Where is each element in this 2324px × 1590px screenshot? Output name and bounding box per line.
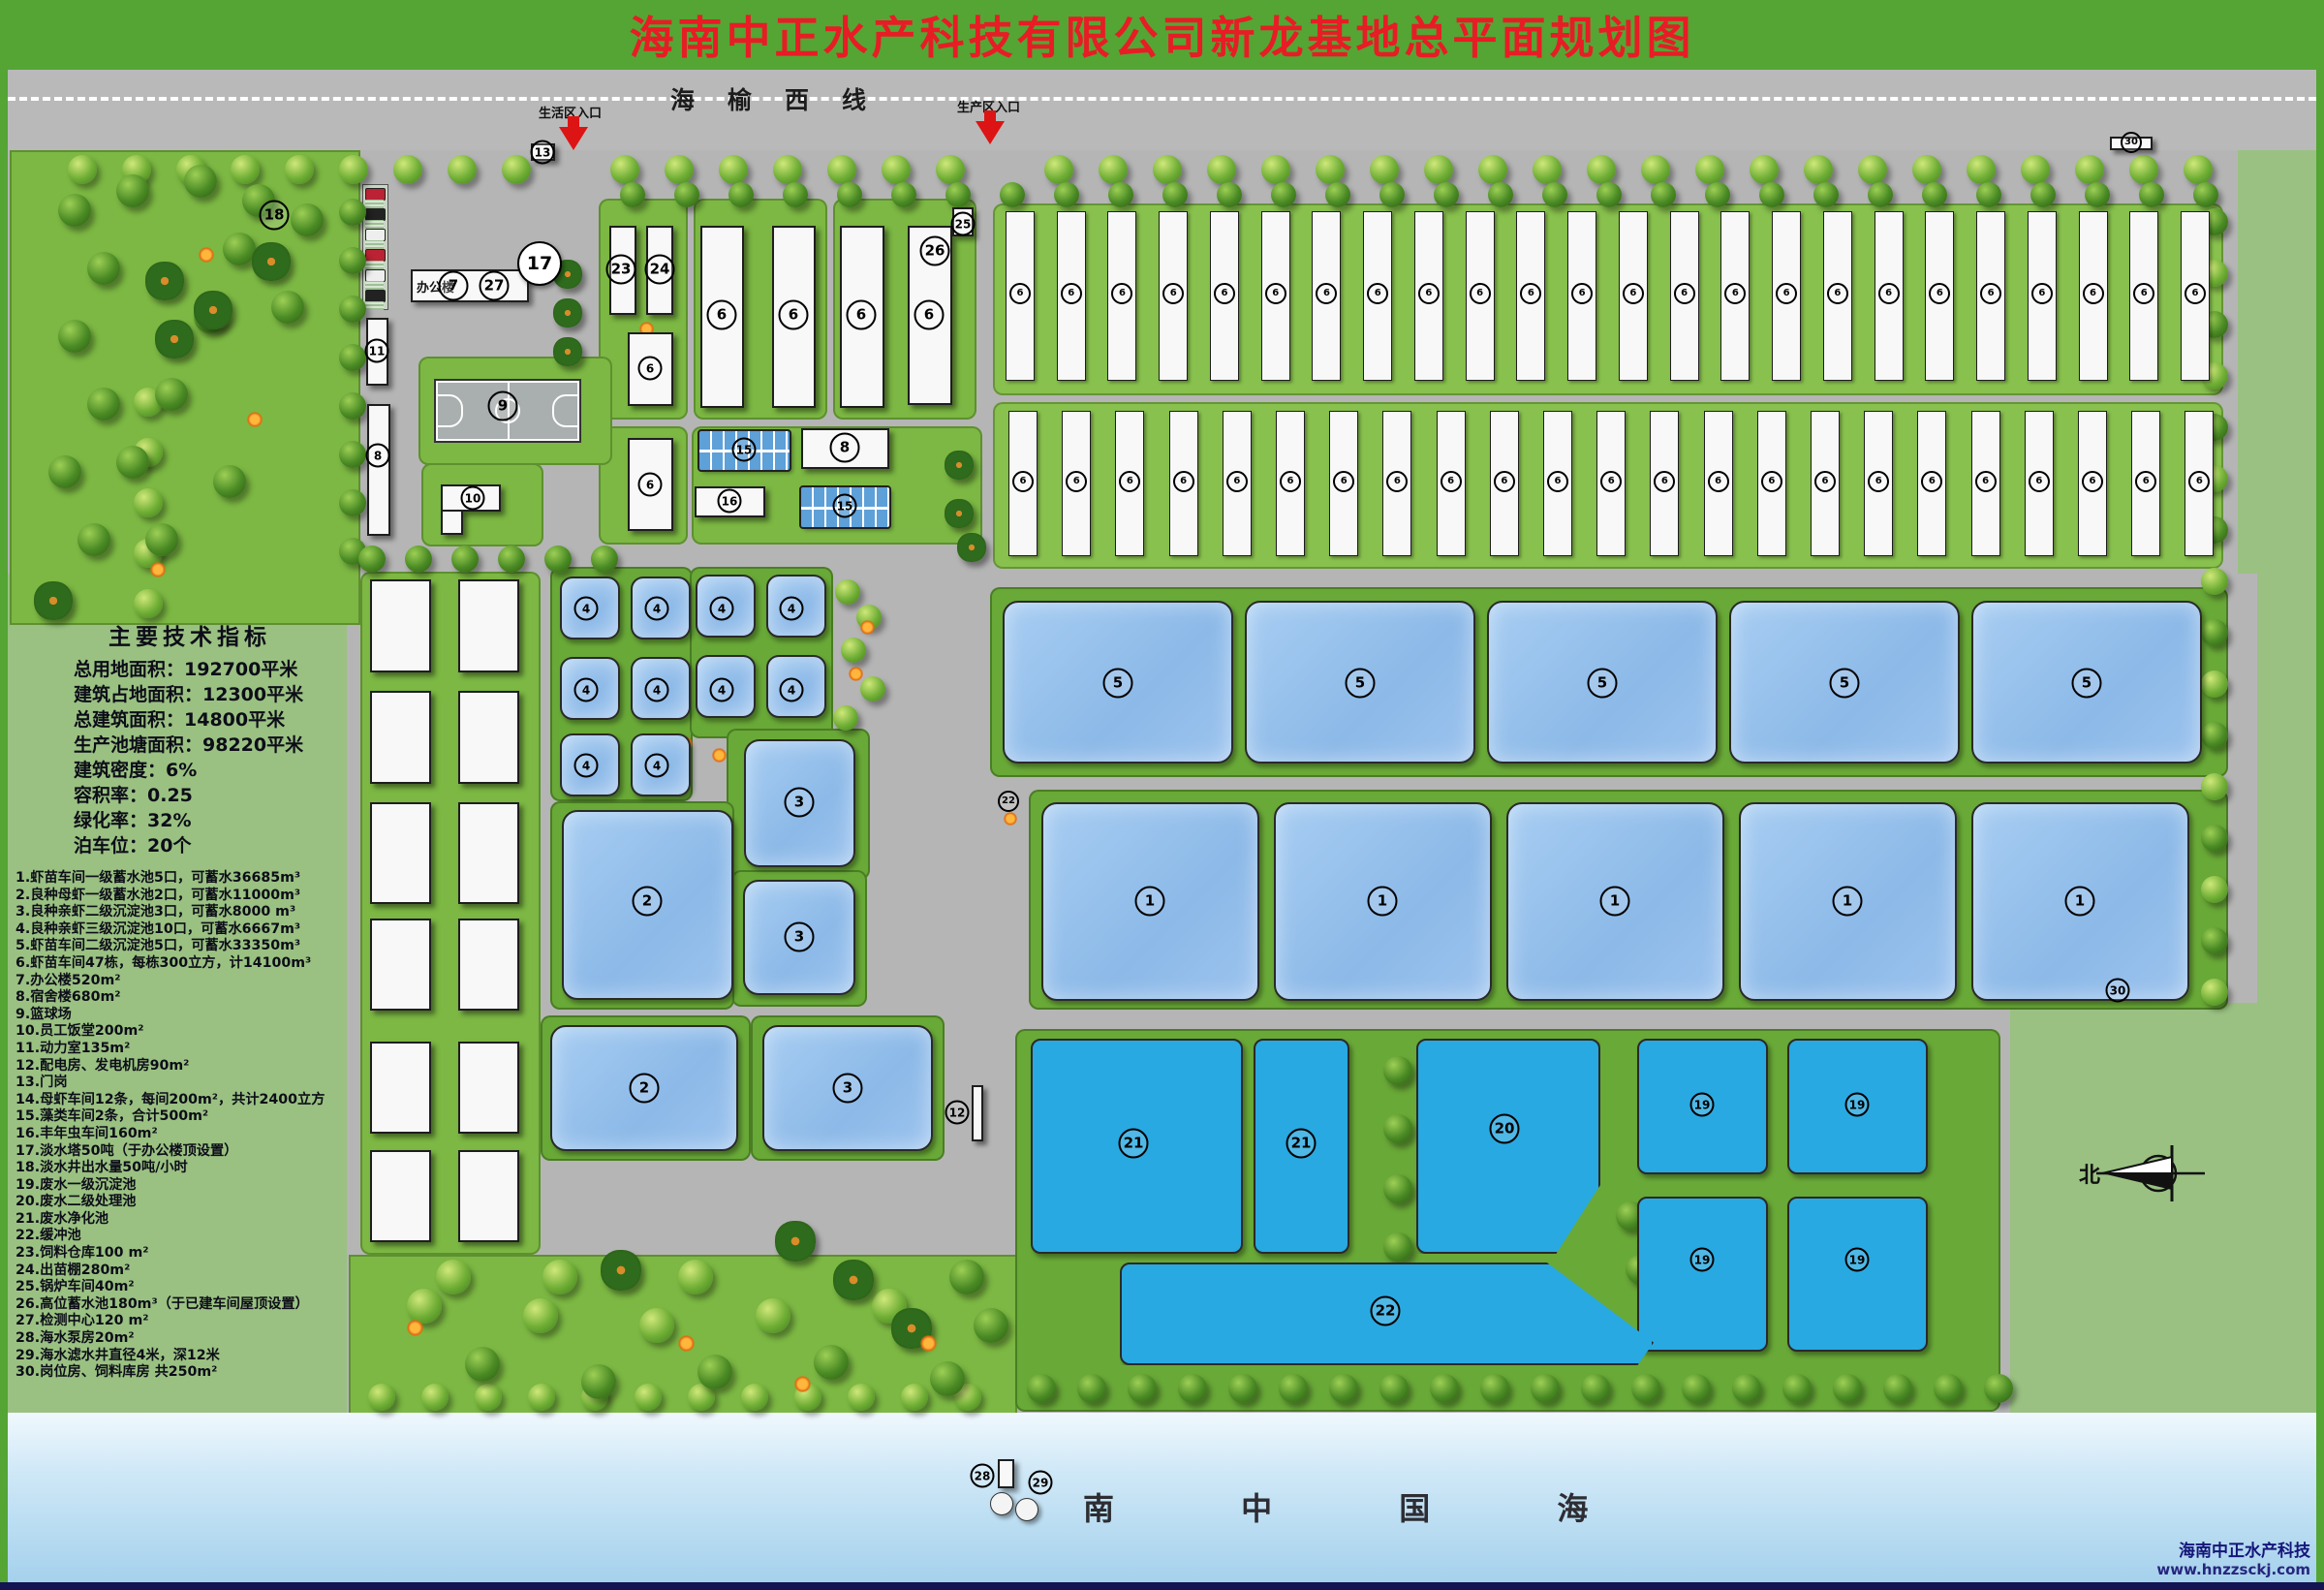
palm-tree-icon [957, 533, 986, 562]
tree-icon [87, 388, 120, 421]
tree-icon [860, 676, 885, 701]
company-website: www.hnzzsckj.com [2020, 1561, 2310, 1579]
map-marker-4: 4 [645, 678, 669, 702]
tree-icon [974, 1308, 1008, 1343]
tree-icon [1488, 182, 1513, 207]
map-marker-4: 4 [574, 754, 599, 778]
tree-icon [542, 1260, 577, 1294]
mother-shrimp-workshop [370, 1042, 431, 1134]
map-marker-6: 6 [914, 300, 945, 330]
map-marker-6: 6 [2188, 471, 2210, 492]
map-marker-15: 15 [833, 494, 857, 518]
tree-icon [610, 155, 639, 184]
map-marker-2: 2 [630, 1074, 660, 1104]
map-marker-19: 19 [1845, 1093, 1870, 1117]
tree-icon [1984, 1374, 2013, 1403]
map-marker-6: 6 [1623, 283, 1644, 304]
map-marker-5: 5 [2072, 669, 2102, 699]
map-marker-16: 16 [718, 489, 742, 514]
map-marker-7: 7 [439, 271, 469, 301]
palm-tree-icon [252, 242, 291, 281]
frame-right [2316, 0, 2324, 1582]
map-marker-4: 4 [780, 597, 804, 621]
mother-shrimp-workshop [370, 579, 431, 672]
map-marker-6: 6 [1012, 471, 1034, 492]
map-marker-19: 19 [1690, 1248, 1715, 1272]
map-marker-6: 6 [1119, 471, 1140, 492]
tree-icon [368, 1384, 395, 1411]
map-marker-6: 6 [1654, 471, 1675, 492]
tree-icon [1153, 155, 1182, 184]
tree-icon [2201, 619, 2228, 646]
tree-icon [1430, 1374, 1459, 1403]
tree-icon [184, 165, 217, 198]
company-name: 海南中正水产科技 [2020, 1543, 2310, 1561]
palm-tree-icon [945, 499, 974, 528]
tree-icon [2184, 155, 2213, 184]
highway-centerline [8, 97, 2316, 101]
tree-icon [827, 155, 856, 184]
tree-icon [1379, 1374, 1409, 1403]
tree-icon [719, 155, 748, 184]
tree-icon [271, 291, 304, 324]
tree-icon [1976, 182, 2001, 207]
parking-cell [365, 261, 384, 269]
tree-icon [1631, 1374, 1660, 1403]
mother-shrimp-workshop [370, 691, 431, 784]
tree-icon [1383, 1114, 1412, 1143]
palm-tree-icon [553, 337, 582, 366]
palm-tree-icon [155, 320, 194, 359]
tree-icon [339, 296, 366, 323]
flower-icon [407, 1320, 423, 1336]
tree-icon [1705, 182, 1730, 207]
map-marker-17: 17 [517, 241, 562, 286]
tree-icon [339, 247, 366, 274]
tree-icon [674, 182, 699, 207]
sediment-pond-19 [1637, 1197, 1768, 1352]
tree-icon [155, 378, 188, 411]
tree-icon [339, 441, 366, 468]
tree-icon [1922, 182, 1947, 207]
tree-icon [1207, 155, 1236, 184]
map-marker-10: 10 [461, 486, 485, 511]
tree-icon [1424, 155, 1453, 184]
tree-icon [1217, 182, 1242, 207]
map-marker-1: 1 [1833, 887, 1863, 917]
sea-name: 南 中 国 海 [1083, 1484, 1646, 1529]
site-plan-canvas: 海榆西线 生活区入口 生产区入口 办公楼 南 中 国 海 主要技术指标 总用地面… [0, 0, 2324, 1590]
map-marker-6: 6 [1814, 471, 1836, 492]
compass-icon: 北 [2073, 1141, 2209, 1205]
flower-icon [150, 562, 166, 577]
tree-icon [1750, 155, 1779, 184]
map-marker-6: 6 [1868, 471, 1889, 492]
map-marker-6: 6 [1929, 283, 1950, 304]
map-marker-6: 6 [1441, 471, 1462, 492]
frame-bottom [0, 1582, 2324, 1590]
mother-shrimp-workshop [458, 1150, 519, 1242]
tree-icon [741, 1384, 768, 1411]
tree-icon [1077, 1374, 1106, 1403]
map-marker-6: 6 [1724, 283, 1746, 304]
tree-icon [620, 182, 645, 207]
map-marker-22: 22 [998, 791, 1019, 812]
mother-shrimp-workshop [458, 919, 519, 1011]
flower-icon [860, 620, 875, 635]
map-marker-1: 1 [1368, 887, 1398, 917]
tree-icon [1682, 1374, 1711, 1403]
tree-icon [116, 174, 149, 207]
parking-cell [365, 220, 384, 229]
parking-cell [365, 200, 384, 208]
tree-icon [1054, 182, 1079, 207]
map-marker-6: 6 [1265, 283, 1286, 304]
tree-icon [2030, 182, 2056, 207]
tree-icon [945, 182, 971, 207]
tree-icon [1162, 182, 1188, 207]
map-marker-29: 29 [1029, 1471, 1053, 1495]
map-marker-28: 28 [971, 1464, 995, 1488]
tree-icon [58, 320, 91, 353]
map-marker-2: 2 [633, 887, 663, 917]
map-marker-6: 6 [1009, 283, 1031, 304]
tree-icon [835, 579, 860, 605]
map-marker-4: 4 [710, 597, 734, 621]
map-marker-6: 6 [1600, 471, 1622, 492]
tree-icon [2201, 568, 2228, 595]
flower-icon [247, 412, 263, 427]
treatment-pond-20 [1416, 1039, 1600, 1254]
flower-icon [712, 748, 727, 763]
tree-icon [421, 1384, 449, 1411]
tree-icon [1542, 182, 1567, 207]
mother-shrimp-workshop [458, 691, 519, 784]
map-marker-6: 6 [1173, 471, 1194, 492]
tree-icon [2085, 182, 2110, 207]
tree-icon [665, 155, 694, 184]
map-marker-22: 22 [1371, 1296, 1401, 1326]
tree-icon [891, 182, 916, 207]
tree-icon [2201, 825, 2228, 852]
tree-icon [339, 155, 368, 184]
tree-icon [1099, 155, 1128, 184]
tree-icon [134, 488, 163, 517]
tree-icon [2201, 876, 2228, 903]
flower-icon [199, 247, 214, 263]
map-marker-6: 6 [2083, 283, 2104, 304]
tree-icon [783, 182, 808, 207]
map-marker-23: 23 [606, 255, 636, 285]
map-marker-6: 6 [1333, 471, 1354, 492]
tree-icon [1128, 1374, 1157, 1403]
tree-icon [358, 546, 386, 573]
tree-icon [814, 1345, 849, 1380]
tree-icon [134, 589, 163, 618]
palm-tree-icon [775, 1221, 816, 1262]
tree-icon [1833, 1374, 1862, 1403]
map-marker-6: 6 [2031, 283, 2053, 304]
palm-tree-icon [194, 291, 232, 329]
tree-icon [339, 392, 366, 420]
tree-icon [1804, 155, 1833, 184]
seawater-filter-well [990, 1492, 1013, 1515]
tree-icon [930, 1361, 965, 1396]
tree-icon [2129, 155, 2158, 184]
map-marker-6: 6 [1571, 283, 1593, 304]
map-marker-6: 6 [847, 300, 877, 330]
palm-tree-icon [833, 1260, 874, 1300]
tree-icon [837, 182, 862, 207]
map-marker-6: 6 [1761, 471, 1782, 492]
map-marker-6: 6 [1776, 283, 1797, 304]
tree-icon [1587, 155, 1616, 184]
palm-tree-icon [945, 451, 974, 480]
tree-icon [1325, 182, 1350, 207]
map-marker-6: 6 [1921, 471, 1942, 492]
tree-icon [949, 1260, 984, 1294]
mother-shrimp-workshop [458, 1042, 519, 1134]
tree-icon [1271, 182, 1296, 207]
tree-icon [1329, 1374, 1358, 1403]
office-building: 办公楼 [411, 269, 529, 302]
mother-shrimp-workshop [458, 579, 519, 672]
tree-icon [901, 1384, 928, 1411]
map-marker-6: 6 [1214, 283, 1235, 304]
tree-icon [1581, 1374, 1610, 1403]
tree-icon [1383, 1174, 1412, 1203]
tree-icon [697, 1355, 732, 1389]
map-marker-6: 6 [1280, 471, 1301, 492]
seawater-pump-house [998, 1459, 1014, 1488]
tree-icon [77, 523, 110, 556]
tree-icon [833, 705, 858, 731]
tree-icon [1434, 182, 1459, 207]
legend-list: 1.虾苗车间一级蓄水池5口，可蓄水36685m³ 2.良种母虾一级蓄水池2口，可… [15, 870, 325, 1382]
map-marker-3: 3 [833, 1074, 863, 1104]
map-marker-1: 1 [2065, 887, 2095, 917]
tree-icon [2075, 155, 2104, 184]
tree-icon [451, 546, 479, 573]
flower-icon [794, 1376, 811, 1392]
tree-icon [231, 155, 260, 184]
map-marker-6: 6 [638, 357, 663, 381]
tree-icon [591, 546, 618, 573]
map-marker-6: 6 [1418, 283, 1440, 304]
tree-icon [1967, 155, 1996, 184]
tree-icon [1883, 1374, 1912, 1403]
tree-icon [48, 455, 81, 488]
map-marker-8: 8 [366, 444, 390, 468]
entrance-right-arrowhead-icon [976, 121, 1005, 144]
tree-icon [756, 1298, 790, 1333]
tree-icon [1383, 1056, 1412, 1085]
map-marker-24: 24 [645, 255, 675, 285]
tree-icon [1178, 1374, 1207, 1403]
flower-icon [678, 1335, 695, 1352]
tree-icon [1695, 155, 1724, 184]
tree-icon [145, 523, 178, 556]
tree-icon [1531, 1374, 1560, 1403]
tree-icon [678, 1260, 713, 1294]
dormitory [367, 404, 390, 536]
tree-icon [475, 1384, 502, 1411]
palm-tree-icon [601, 1250, 641, 1291]
map-marker-6: 6 [779, 300, 809, 330]
map-marker-11: 11 [365, 339, 389, 363]
parking-strip [362, 184, 388, 310]
tree-icon [635, 1384, 662, 1411]
map-marker-6: 6 [638, 473, 663, 497]
tree-icon [882, 155, 911, 184]
parking-cell [365, 240, 384, 249]
mother-shrimp-workshop [458, 802, 519, 904]
tree-icon [2201, 670, 2228, 698]
tree-icon [1370, 155, 1399, 184]
map-marker-1: 1 [1600, 887, 1630, 917]
map-marker-4: 4 [710, 678, 734, 702]
tree-icon [87, 252, 120, 285]
tree-icon [1480, 1374, 1509, 1403]
map-marker-19: 19 [1690, 1093, 1715, 1117]
tree-icon [223, 233, 256, 265]
entrance-left-arrowhead-icon [559, 127, 588, 150]
map-marker-6: 6 [2185, 283, 2206, 304]
map-marker-6: 6 [1980, 283, 2001, 304]
tree-icon [1478, 155, 1507, 184]
map-marker-6: 6 [1061, 283, 1082, 304]
indicators-title: 主要技术指标 [108, 618, 271, 651]
tree-icon [291, 203, 324, 236]
tree-icon [213, 465, 246, 498]
tree-icon [1732, 1374, 1761, 1403]
sediment-pond-19 [1787, 1197, 1928, 1352]
tree-icon [581, 1364, 616, 1399]
tree-icon [58, 194, 91, 227]
map-marker-5: 5 [1103, 669, 1133, 699]
canteen [441, 510, 463, 535]
map-marker-25: 25 [951, 212, 976, 236]
tree-icon [448, 155, 477, 184]
title-band: 海南中正水产科技有限公司新龙基地总平面规划图 [0, 0, 2324, 70]
map-marker-6: 6 [1878, 283, 1900, 304]
palm-tree-icon [553, 298, 582, 327]
tree-icon [544, 546, 572, 573]
map-marker-4: 4 [780, 678, 804, 702]
map-marker-4: 4 [574, 678, 599, 702]
compass-north-label: 北 [2079, 1164, 2100, 1188]
highway [8, 70, 2316, 150]
tree-icon [1379, 182, 1405, 207]
map-marker-4: 4 [645, 597, 669, 621]
tree-icon [1858, 155, 1887, 184]
map-marker-6: 6 [1674, 283, 1695, 304]
flower-icon [1004, 812, 1017, 826]
tree-icon [1316, 155, 1345, 184]
tree-icon [728, 182, 754, 207]
map-marker-3: 3 [785, 788, 815, 818]
flower-icon [920, 1335, 937, 1352]
map-marker-21: 21 [1286, 1129, 1317, 1159]
frame-left [0, 0, 8, 1582]
tree-icon [1279, 1374, 1308, 1403]
map-marker-6: 6 [2082, 471, 2103, 492]
map-marker-6: 6 [2135, 471, 2156, 492]
palm-tree-icon [34, 581, 73, 620]
tree-icon [841, 638, 866, 663]
tree-icon [2201, 773, 2228, 800]
map-marker-6: 6 [1470, 283, 1491, 304]
tree-icon [1641, 155, 1670, 184]
map-marker-30: 30 [2121, 132, 2142, 153]
parking-cell [365, 301, 384, 310]
branding: 海南中正水产科技 www.hnzzsckj.com [2020, 1543, 2310, 1579]
map-marker-20: 20 [1490, 1114, 1520, 1144]
tree-icon [1044, 155, 1073, 184]
map-marker-6: 6 [2133, 283, 2154, 304]
tree-icon [1596, 182, 1622, 207]
map-marker-6: 6 [1226, 471, 1248, 492]
parking-cell [365, 281, 384, 290]
tree-icon [1912, 155, 1941, 184]
tree-icon [1261, 155, 1290, 184]
map-marker-6: 6 [1975, 471, 1997, 492]
tree-icon [465, 1347, 500, 1382]
tree-icon [1000, 182, 1025, 207]
tree-icon [1782, 1374, 1812, 1403]
tree-icon [1533, 155, 1562, 184]
mother-shrimp-workshop [370, 802, 431, 904]
indicators-lines: 总用地面积：192700平米 建筑占地面积：12300平米 总建筑面积：1480… [74, 657, 303, 858]
tree-icon [68, 155, 97, 184]
tree-icon [1813, 182, 1839, 207]
map-marker-5: 5 [1346, 669, 1376, 699]
map-marker-8: 8 [830, 433, 860, 463]
map-marker-6: 6 [1386, 471, 1408, 492]
map-marker-12: 12 [945, 1101, 970, 1125]
map-marker-3: 3 [785, 922, 815, 952]
palm-tree-icon [145, 262, 184, 300]
map-marker-6: 6 [1367, 283, 1388, 304]
map-marker-6: 6 [1316, 283, 1337, 304]
map-marker-6: 6 [707, 300, 737, 330]
map-marker-6: 6 [1066, 471, 1087, 492]
plan-title: 海南中正水产科技有限公司新龙基地总平面规划图 [630, 3, 1695, 67]
tree-icon [1934, 1374, 1963, 1403]
tree-icon [1383, 1232, 1412, 1262]
generator-room [972, 1085, 983, 1141]
tree-icon [339, 344, 366, 371]
map-marker-4: 4 [645, 754, 669, 778]
map-marker-18: 18 [260, 201, 290, 231]
tree-icon [1868, 182, 1893, 207]
tree-icon [2193, 182, 2218, 207]
map-marker-5: 5 [1830, 669, 1860, 699]
tree-icon [502, 155, 531, 184]
map-marker-26: 26 [920, 236, 950, 266]
tree-icon [498, 546, 525, 573]
map-marker-6: 6 [1162, 283, 1184, 304]
tree-icon [1108, 182, 1133, 207]
map-marker-19: 19 [1845, 1248, 1870, 1272]
tree-icon [1651, 182, 1676, 207]
map-marker-6: 6 [1520, 283, 1541, 304]
map-marker-21: 21 [1119, 1129, 1149, 1159]
tree-icon [436, 1260, 471, 1294]
tree-icon [2201, 722, 2228, 749]
tree-icon [339, 489, 366, 516]
tree-icon [848, 1384, 875, 1411]
